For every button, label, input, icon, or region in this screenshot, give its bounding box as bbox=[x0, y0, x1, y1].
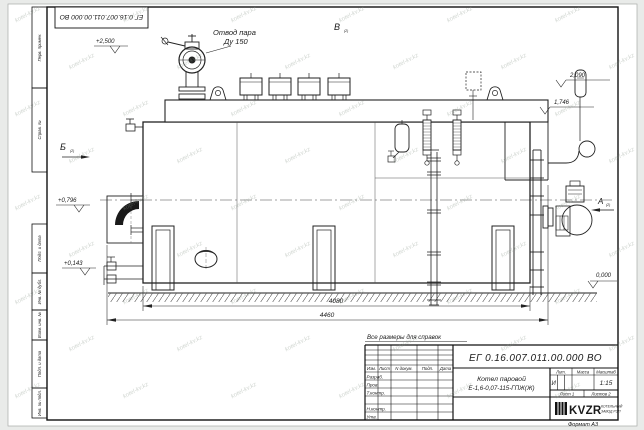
svg-text:Утв.: Утв. bbox=[367, 415, 377, 420]
kvzr-coil-icon bbox=[555, 402, 567, 415]
svg-text:0,000: 0,000 bbox=[596, 273, 612, 279]
corner-stamp: ЕГ 0.16.007.011.00.000 ВО bbox=[55, 7, 148, 28]
svg-text:1,746: 1,746 bbox=[554, 100, 570, 106]
lit-value: И bbox=[551, 381, 556, 387]
svg-text:+0,796: +0,796 bbox=[58, 198, 77, 204]
dim-inner-label: 4080 bbox=[329, 298, 344, 305]
svg-text:Подп. и дата: Подп. и дата bbox=[37, 350, 42, 377]
view-a-label: А bbox=[597, 197, 603, 206]
view-b-label: Б bbox=[60, 142, 66, 152]
dim-overall-label: 4460 bbox=[320, 312, 335, 319]
view-v-label: В bbox=[334, 22, 340, 32]
svg-text:N докум.: N докум. bbox=[395, 366, 412, 371]
doc-designation: ЕГ 0.16.007.011.00.000 ВО bbox=[469, 353, 602, 364]
svg-text:(2): (2) bbox=[344, 29, 348, 33]
svg-text:+2,500: +2,500 bbox=[96, 39, 115, 45]
logo-text: KVZR bbox=[569, 405, 602, 417]
callout-text-1: Отвод пара bbox=[213, 28, 256, 37]
svg-text:(2): (2) bbox=[70, 149, 74, 153]
svg-text:Пров.: Пров. bbox=[367, 383, 379, 388]
drawing-sheet: ЕГ 0.16.007.011.00.000 ВО Перв. примен. … bbox=[0, 0, 644, 430]
format-label: Формат А3 bbox=[568, 422, 599, 428]
sheet-number: Лист 1 bbox=[559, 391, 575, 396]
ground-line bbox=[108, 293, 597, 302]
svg-text:Масштаб: Масштаб bbox=[596, 369, 616, 374]
svg-text:ЗАВОД РЭП: ЗАВОД РЭП bbox=[601, 410, 621, 414]
svg-text:Масса: Масса bbox=[577, 369, 590, 374]
scale-value: 1:15 bbox=[600, 380, 613, 387]
svg-text:КОТЕЛЬНЫЙ: КОТЕЛЬНЫЙ bbox=[601, 405, 623, 409]
svg-text:Инв. № подл.: Инв. № подл. bbox=[37, 390, 42, 416]
svg-text:Подп. и дата: Подп. и дата bbox=[37, 235, 42, 262]
svg-text:Разраб.: Разраб. bbox=[367, 375, 384, 380]
callout-text-2: Ду 150 bbox=[223, 37, 249, 46]
svg-text:Н.контр.: Н.контр. bbox=[367, 407, 386, 412]
svg-text:Взам. инв. №: Взам. инв. № bbox=[37, 312, 42, 338]
svg-text:+0,143: +0,143 bbox=[64, 261, 83, 267]
svg-text:Дата: Дата bbox=[439, 366, 452, 371]
product-name-1: Котел паровой bbox=[477, 375, 526, 383]
svg-text:Лит.: Лит. bbox=[555, 369, 566, 374]
svg-text:Перв. примен.: Перв. примен. bbox=[37, 34, 42, 62]
technical-drawing-canvas: ЕГ 0.16.007.011.00.000 ВО Перв. примен. … bbox=[0, 0, 644, 430]
svg-text:Изм.: Изм. bbox=[367, 366, 376, 371]
svg-text:Справ. №: Справ. № bbox=[37, 120, 42, 139]
svg-text:Инв. № дубл.: Инв. № дубл. bbox=[37, 279, 42, 305]
svg-text:Т.контр.: Т.контр. bbox=[367, 391, 386, 396]
svg-text:Лист: Лист bbox=[378, 366, 390, 371]
corner-stamp-text: ЕГ 0.16.007.011.00.000 ВО bbox=[59, 13, 143, 20]
svg-text:(2): (2) bbox=[606, 203, 610, 207]
svg-text:2,090: 2,090 bbox=[569, 73, 586, 79]
product-name-2: Е-1,6-0,07-115-ГПЖ(Ж) bbox=[468, 385, 534, 392]
svg-text:Все размеры для справок: Все размеры для справок bbox=[367, 334, 442, 341]
sheets-total: Листов 2 bbox=[590, 391, 611, 396]
svg-text:Подп.: Подп. bbox=[422, 366, 433, 371]
